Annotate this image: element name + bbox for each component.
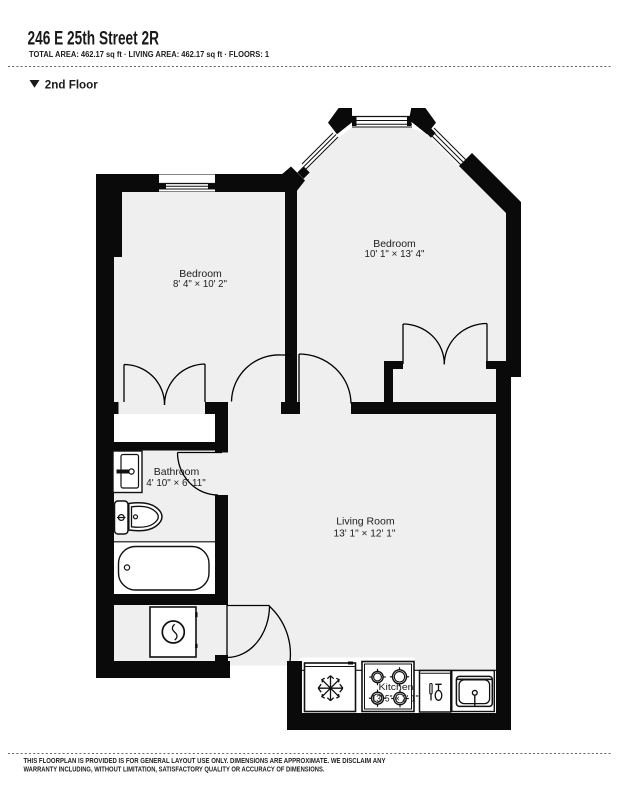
svg-text:TOTAL AREA: 462.17 sq ft · LIV: TOTAL AREA: 462.17 sq ft · LIVING AREA: … — [29, 50, 270, 59]
svg-text:246 E 25th Street 2R: 246 E 25th Street 2R — [28, 29, 160, 50]
svg-text:THIS FLOORPLAN IS PROVIDED IS: THIS FLOORPLAN IS PROVIDED IS FOR GENERA… — [24, 758, 386, 765]
svg-text:8' 4" × 10' 2": 8' 4" × 10' 2" — [173, 278, 227, 290]
svg-text:2nd Floor: 2nd Floor — [45, 77, 98, 91]
svg-text:WARRANTY INCLUDING, WITHOUT LI: WARRANTY INCLUDING, WITHOUT LIMITATION, … — [24, 766, 325, 773]
svg-text:Kitchen: Kitchen — [379, 682, 414, 692]
svg-text:13' 1" × 12' 1": 13' 1" × 12' 1" — [334, 528, 396, 540]
svg-text:Living Room: Living Room — [336, 515, 395, 527]
svg-text:10' 1" × 13' 4": 10' 1" × 13' 4" — [365, 248, 425, 260]
svg-text:13' 5" × 2' 1": 13' 5" × 2' 1" — [372, 694, 419, 704]
svg-text:4' 10" × 6' 11": 4' 10" × 6' 11" — [146, 477, 206, 489]
